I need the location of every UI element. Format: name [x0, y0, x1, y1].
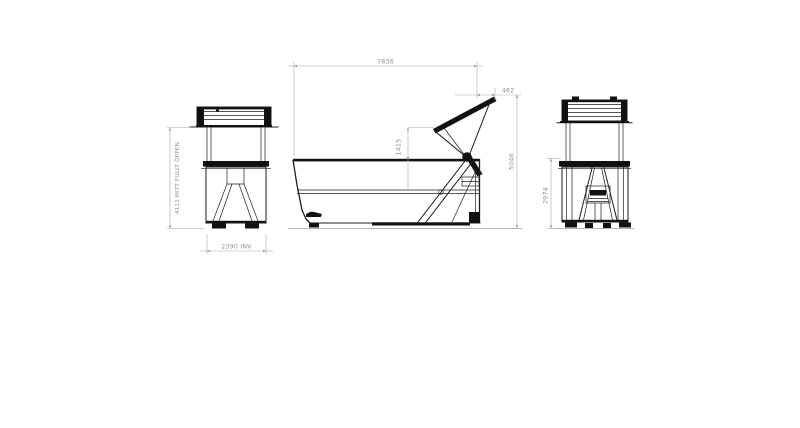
front-left-foot: [212, 224, 226, 229]
rear-right-foot: [619, 223, 631, 228]
dimension-rear-height: 2974: [543, 159, 562, 229]
dimension-side-overall-height-open: 5046: [509, 95, 518, 228]
side-view: 7836 462 5046 1415: [288, 59, 522, 229]
rear-body: [558, 123, 631, 228]
side-body: [293, 159, 480, 228]
side-front-foot: [309, 223, 319, 227]
manufacturer-logo-mark: [306, 212, 322, 217]
technical-drawing: 2390 INV 4111 MITT FULLT ÖPPEN: [0, 0, 800, 428]
front-hinge-bar: [190, 125, 278, 127]
side-overall-height-open-label: 5046: [509, 153, 516, 170]
front-inner-width-label: 2390 INV: [221, 244, 252, 251]
drawing-page: 2390 INV 4111 MITT FULLT ÖPPEN: [0, 0, 800, 428]
front-right-foot: [245, 224, 259, 229]
side-rear-roller: [469, 212, 480, 223]
rear-height-label: 2974: [543, 187, 550, 204]
side-lid-extension-label: 1415: [396, 139, 403, 156]
dimension-front-height-open: 4111 MITT FULLT ÖPPEN: [167, 128, 204, 229]
side-open-lid: [433, 97, 497, 177]
dimension-side-rear-overhang: 462: [455, 88, 521, 101]
dimension-front-inner-width: 2390 INV: [200, 234, 273, 254]
rear-folded-lid: [562, 97, 627, 122]
front-folded-lid: [197, 107, 271, 126]
rear-view: 2974: [543, 97, 635, 229]
rear-hinge-bar: [557, 121, 632, 123]
front-height-open-label: 4111 MITT FULLT ÖPPEN: [174, 142, 181, 214]
side-overall-length-label: 7836: [377, 59, 394, 66]
front-body: [201, 127, 271, 229]
side-rear-overhang-label: 462: [502, 88, 515, 95]
front-view: 2390 INV 4111 MITT FULLT ÖPPEN: [167, 107, 278, 254]
rear-left-foot: [565, 223, 577, 228]
